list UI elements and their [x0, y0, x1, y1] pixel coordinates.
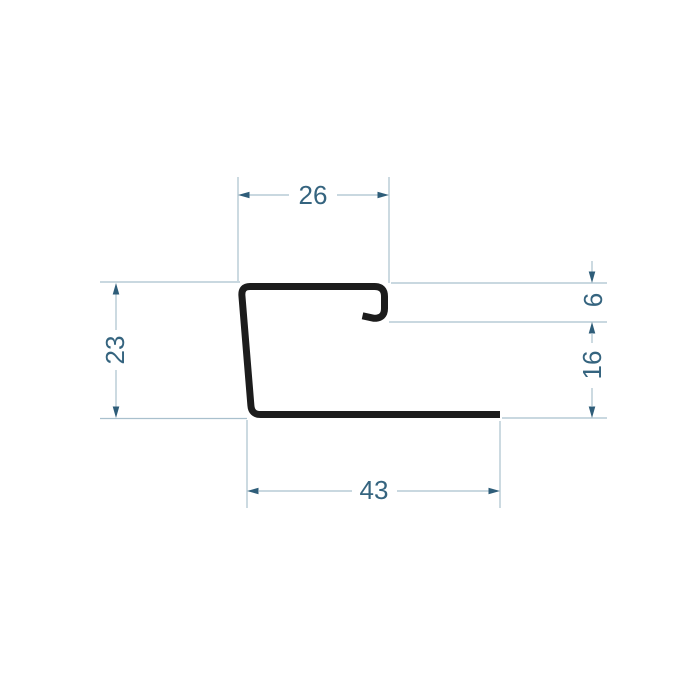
- dimension-label-hook-depth: 6: [578, 293, 608, 307]
- dimension-bottom-width: 43: [247, 420, 500, 508]
- arrowhead-down-icon: [589, 407, 596, 419]
- arrowhead-up-icon: [113, 283, 120, 295]
- arrowhead-left-icon: [238, 192, 250, 199]
- arrowhead-right-icon: [378, 192, 390, 199]
- arrowhead-down-icon: [589, 272, 596, 284]
- arrowhead-down-icon: [113, 407, 120, 419]
- technical-drawing: 26 23 6 16: [0, 0, 700, 700]
- dimension-label-left-height: 23: [100, 336, 130, 365]
- profile: [242, 287, 500, 415]
- dimension-label-top-width: 26: [299, 180, 328, 210]
- dimension-top-width: 26: [238, 177, 389, 283]
- dimension-right-side: 6 16: [389, 261, 608, 418]
- profile-outline: [242, 287, 500, 415]
- arrowhead-right-icon: [489, 488, 501, 495]
- arrowhead-up-icon: [589, 322, 596, 334]
- dimension-label-right-height: 16: [577, 351, 607, 380]
- drawing-canvas: 26 23 6 16: [0, 0, 700, 700]
- dimension-label-bottom-width: 43: [360, 475, 389, 505]
- dimension-left-height: 23: [100, 282, 247, 419]
- arrowhead-left-icon: [247, 488, 259, 495]
